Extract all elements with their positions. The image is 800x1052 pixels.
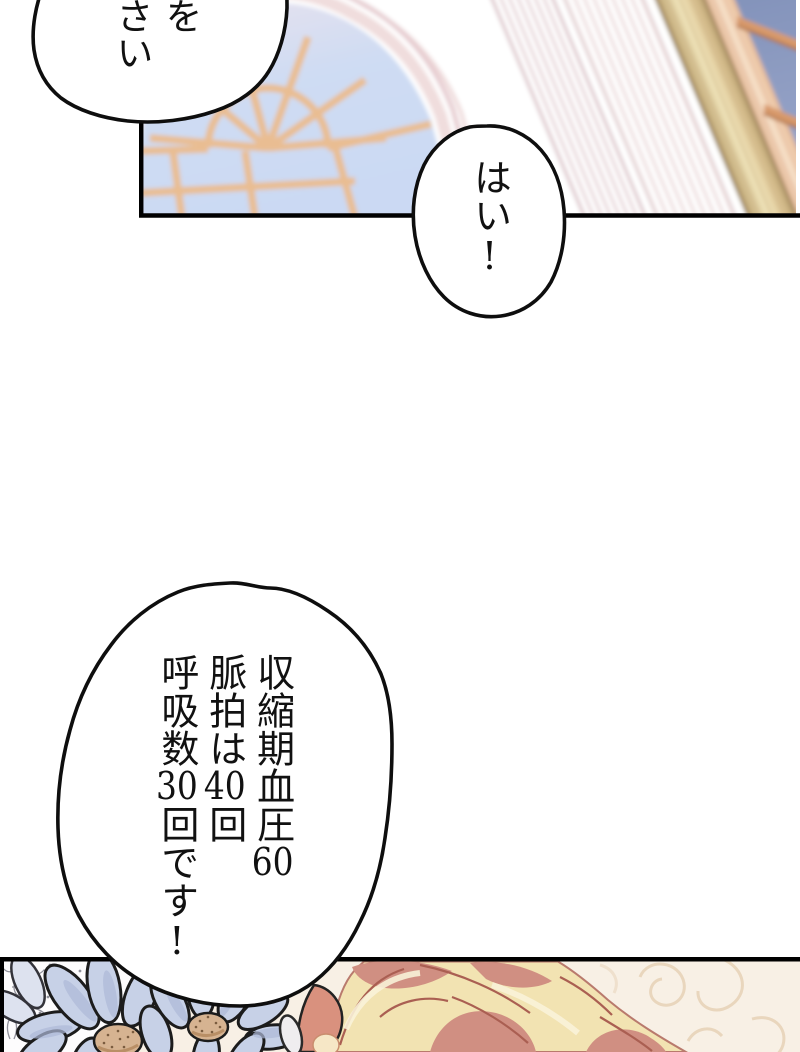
speech-bubbles-layer bbox=[0, 0, 800, 1052]
bubble-text-top-left: をさい bbox=[106, 0, 204, 147]
bubble-text-vitals: 収縮期血圧60脈拍は40回呼吸数30回です! bbox=[152, 653, 296, 983]
manga-page: をさい はい! 収縮期血圧60脈拍は40回呼吸数30回です! bbox=[0, 0, 800, 1052]
bubble-text-reply: はい! bbox=[468, 158, 511, 308]
